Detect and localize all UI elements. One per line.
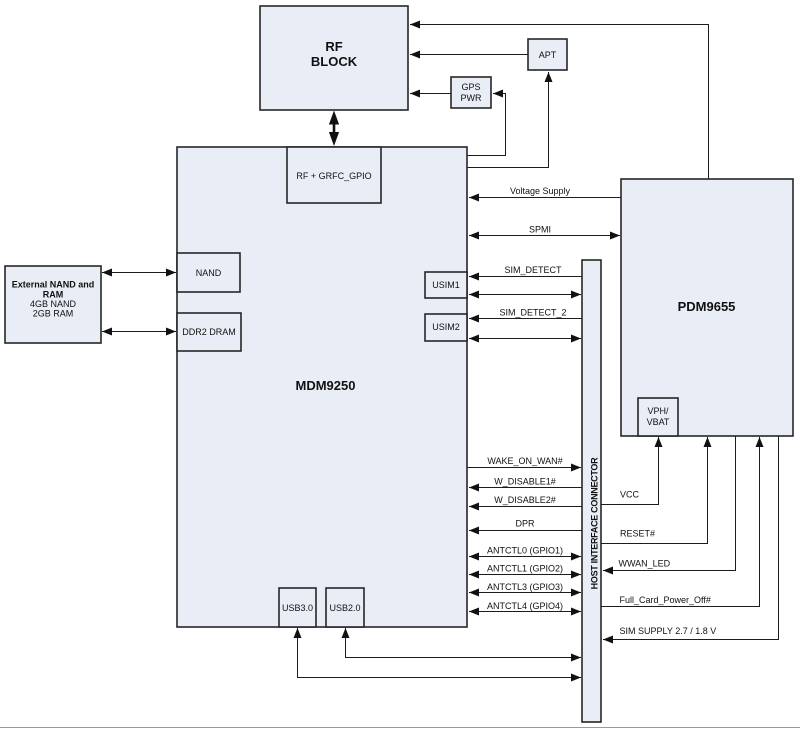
svg-text:ANTCTL0 (GPIO1): ANTCTL0 (GPIO1) [487, 546, 563, 556]
svg-text:VPH/: VPH/ [647, 406, 669, 416]
svg-text:RF + GRFC_GPIO: RF + GRFC_GPIO [296, 171, 371, 181]
svg-text:HOST INTERFACE CONNECTOR: HOST INTERFACE CONNECTOR [590, 457, 600, 589]
svg-text:External NAND and: External NAND and [12, 280, 95, 290]
svg-text:VBAT: VBAT [647, 417, 670, 427]
svg-text:NAND: NAND [196, 268, 222, 278]
svg-text:RF: RF [325, 39, 342, 54]
svg-text:Full_Card_Power_Off#: Full_Card_Power_Off# [620, 595, 711, 605]
svg-text:ANTCTL3 (GPIO3): ANTCTL3 (GPIO3) [487, 582, 563, 592]
svg-text:GPS: GPS [461, 82, 480, 92]
svg-text:ANTCTL1 (GPIO2): ANTCTL1 (GPIO2) [487, 564, 563, 574]
svg-text:MDM9250: MDM9250 [296, 378, 356, 393]
svg-text:SIM_DETECT_2: SIM_DETECT_2 [499, 308, 566, 318]
svg-text:SPMI: SPMI [529, 225, 551, 235]
svg-text:W_DISABLE2#: W_DISABLE2# [494, 495, 556, 505]
svg-text:RESET#: RESET# [620, 529, 655, 539]
svg-text:BLOCK: BLOCK [311, 54, 358, 69]
svg-text:USB3.0: USB3.0 [282, 603, 313, 613]
svg-text:Voltage Supply: Voltage Supply [510, 186, 571, 196]
svg-text:W_DISABLE1#: W_DISABLE1# [494, 477, 556, 487]
svg-text:ANTCTL4 (GPIO4): ANTCTL4 (GPIO4) [487, 601, 563, 611]
svg-text:RAM: RAM [43, 290, 64, 300]
svg-text:SIM_DETECT: SIM_DETECT [504, 265, 562, 275]
svg-text:2GB RAM: 2GB RAM [33, 309, 74, 319]
svg-text:DPR: DPR [515, 519, 535, 529]
svg-text:SIM SUPPLY 2.7 / 1.8 V: SIM SUPPLY 2.7 / 1.8 V [620, 626, 717, 636]
svg-text:4GB NAND: 4GB NAND [30, 299, 77, 309]
svg-text:PDM9655: PDM9655 [678, 299, 736, 314]
svg-text:USB2.0: USB2.0 [329, 603, 360, 613]
svg-text:APT: APT [539, 50, 557, 60]
svg-text:USIM2: USIM2 [432, 322, 460, 332]
svg-text:USIM1: USIM1 [432, 280, 460, 290]
svg-text:DDR2 DRAM: DDR2 DRAM [182, 327, 236, 337]
svg-text:WWAN_LED: WWAN_LED [619, 559, 671, 569]
svg-text:VCC: VCC [620, 490, 640, 500]
svg-text:PWR: PWR [461, 93, 482, 103]
svg-text:WAKE_ON_WAN#: WAKE_ON_WAN# [487, 456, 562, 466]
